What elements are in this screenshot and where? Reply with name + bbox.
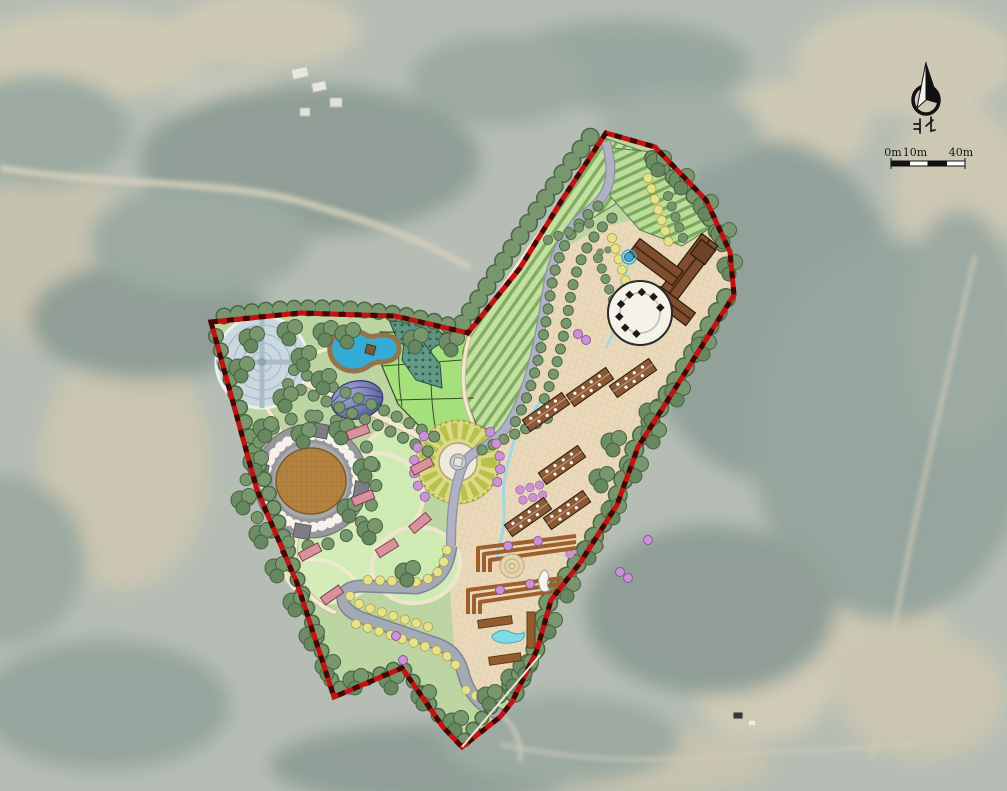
scale-label-0m: 0m: [884, 146, 902, 159]
lawn-mound: [500, 554, 524, 578]
plaza-center-marker: [453, 457, 462, 466]
north-label: 北: [921, 120, 932, 133]
fountain: [622, 250, 636, 264]
scale-label-40m: 40m: [949, 146, 974, 159]
map-canvas: 北 0m 10m 40m: [0, 0, 1007, 791]
scale-label-10m: 10m: [903, 146, 928, 159]
spiral-plaza: [608, 281, 672, 345]
pond-dock: [365, 344, 376, 355]
site-plan-screenshot: 北 0m 10m 40m: [0, 0, 1007, 791]
